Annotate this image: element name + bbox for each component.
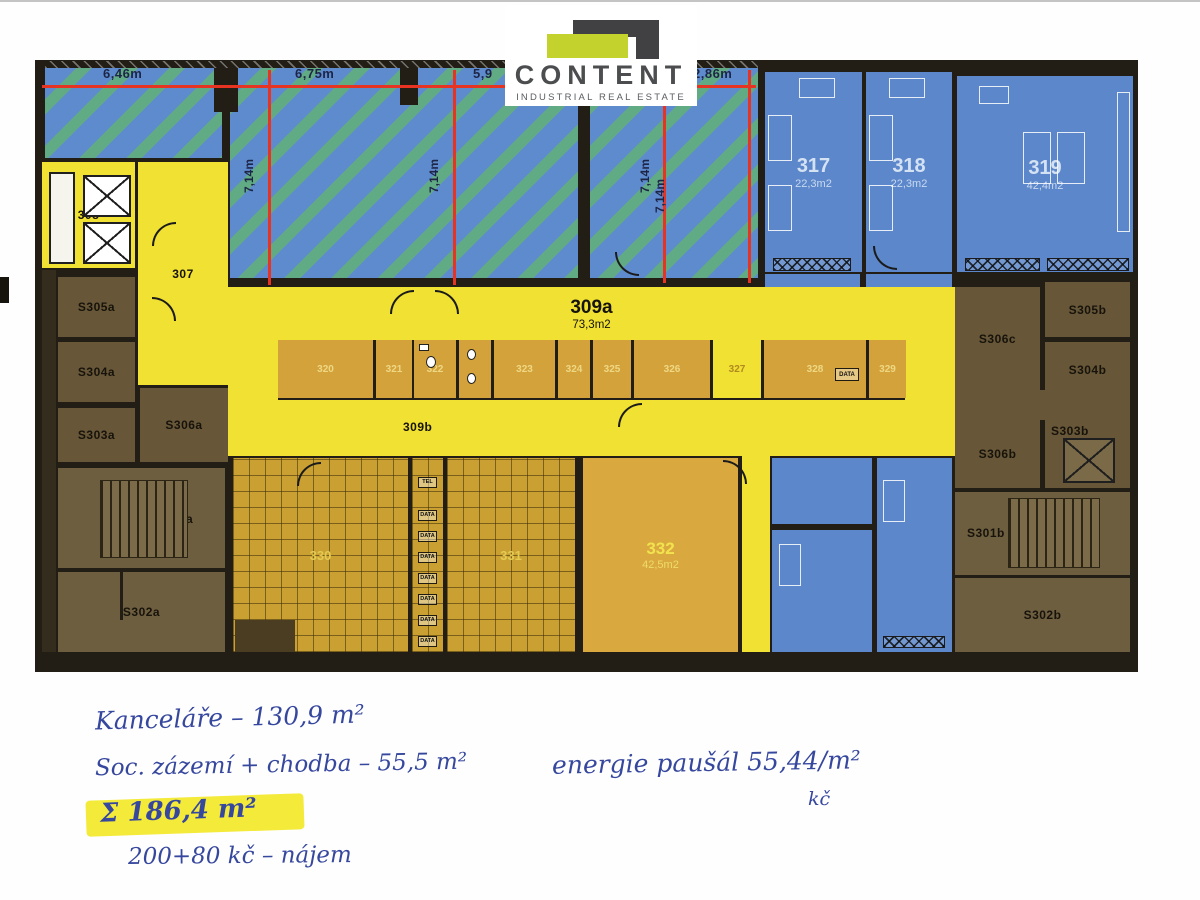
handwritten-note-currency: kč [808,788,830,810]
room-s303b-label: S303b [1051,424,1089,438]
room-318-label: 318 [892,155,925,178]
dimension-label-vertical: 7,14m [653,170,667,222]
room-326-label: 326 [664,364,681,375]
room-332-label: 332 [646,539,674,559]
stairs-icon [1008,498,1100,568]
data-rack-label: DATA [420,576,434,582]
data-rack-icon: DATA [418,573,437,584]
room-s306c-label: S306c [979,332,1016,346]
data-rack-label: DATA [420,639,434,645]
data-rack-label: DATA [420,534,434,540]
room-324-label: 324 [566,364,583,375]
room-s302a-label: S302a [123,605,160,619]
dimension-label-vertical: 7,14m [242,150,256,202]
data-rack-label: DATA [420,597,434,603]
dimension-label: 2,86m [693,66,732,81]
room-s306a-label: S306a [165,418,202,432]
dimension-line-vertical [453,70,456,285]
corridor-309a: 309a 73,3m2 [228,287,955,340]
vestibule-318 [866,274,952,287]
logo-mark-green [547,34,628,58]
room-wc-cell [459,340,491,398]
radiator-strip-icon [773,258,851,271]
room-318-area: 22,3m2 [891,178,928,190]
room-307-label: 307 [172,267,194,281]
data-rack-icon: DATA [418,552,437,563]
room-332: 332 42,5m2 [583,458,738,652]
desk-outline [883,480,905,522]
dimension-label: 5,9 [473,66,493,81]
logo-tagline: INDUSTRIAL REAL ESTATE [505,92,697,103]
desk-outline [889,78,925,98]
handwritten-note-total: Σ 186,4 m² [100,793,258,828]
dimension-line-vertical [268,70,271,285]
dark-floor-patch [235,620,295,652]
room-s303a: S303a [58,408,135,462]
data-rack-icon: DATA [835,368,859,381]
room-317-area: 22,3m2 [795,178,832,190]
room-s305b: S305b [1045,282,1130,337]
elevator-icon [1063,438,1115,483]
sink-icon [426,356,436,368]
room-s306b: S306b [955,420,1040,488]
radiator-strip-icon [883,636,945,648]
tel-rack-icon: TEL [418,477,437,488]
corridor-309a-label: 309a [570,297,612,319]
handwritten-note-rent: 200+80 kč – nájem [128,842,352,870]
room-331-label: 331 [500,548,522,563]
sink-icon [419,344,429,351]
scan-edge-artifact [0,0,1200,2]
room-s303a-label: S303a [78,428,115,442]
scanned-floor-plan-page: 317 22,3m2 318 22,3m2 319 42,4m2 308 [0,0,1200,900]
room-s306a: S306a [140,388,228,462]
room-317: 317 22,3m2 [765,72,862,272]
room-329: 329 [869,340,906,398]
elevator-icon [83,175,131,217]
room-330-label: 330 [310,548,332,563]
floor-plan: 317 22,3m2 318 22,3m2 319 42,4m2 308 [35,60,1138,672]
elevator-icon [83,222,131,264]
desk-outline [768,185,792,231]
room-s304b: S304b [1045,342,1130,397]
room-s302b-label: S302b [1024,608,1062,622]
logo-title: CONTENT [505,60,697,91]
desk-outline [979,86,1009,104]
corridor-wedge [742,456,770,652]
room-321: 321 [376,340,412,398]
room-323-label: 323 [516,364,533,375]
desk-outline [768,115,792,161]
room-325-label: 325 [604,364,621,375]
service-shaft-strip [42,270,56,652]
data-rack-label: DATA [839,372,855,378]
desk-outline [869,185,893,231]
data-rack-icon: DATA [418,594,437,605]
room-320: 320 [278,340,373,398]
data-rack-icon: DATA [418,615,437,626]
room-332-area: 42,5m2 [642,559,679,571]
radiator-strip-icon [1047,258,1129,271]
toilet-icon [467,373,476,384]
vestibule-317 [765,274,860,287]
room-324: 324 [558,340,590,398]
data-rack-label: DATA [420,555,434,561]
data-rack-icon: DATA [418,510,437,521]
room-s306c: S306c [955,287,1040,390]
wall-divider [120,572,123,620]
corridor-link-right [905,340,955,400]
wall-pier [214,68,238,112]
data-rack-icon: DATA [418,636,437,647]
data-rack-label: DATA [420,513,434,519]
data-rack-icon: DATA [418,531,437,542]
desk-outline [869,115,893,161]
shaft-outline [49,172,75,264]
handwritten-note-energy: energie paušál 55,44/m² [552,745,861,779]
open-space-hatched-a [45,68,222,158]
scan-ink-mark [0,277,9,303]
corridor-309b-label: 309b [403,420,432,434]
room-s304b-label: S304b [1069,363,1107,377]
corridor-309b: 309b [228,400,955,456]
logo-mark-dark [636,37,659,59]
room-s304a-label: S304a [78,365,115,379]
handwritten-note-offices: Kanceláře – 130,9 m² [95,699,365,735]
room-s305b-label: S305b [1069,303,1107,317]
room-s305a: S305a [58,277,135,337]
desk-outline [799,78,835,98]
dimension-label: 6,46m [103,66,142,81]
room-327: 327 [713,340,761,398]
room-s305a-label: S305a [78,300,115,314]
room-s302a: S302a [58,572,225,652]
data-rack-label: DATA [420,618,434,624]
room-318: 318 22,3m2 [866,72,952,272]
room-s304a: S304a [58,342,135,402]
corridor-link-left [228,340,278,400]
dimension-line-vertical [748,70,751,283]
room-blue-sw [772,458,872,524]
tel-rack-label: TEL [422,480,432,486]
room-331: 331 [447,458,575,652]
room-307: 307 [138,162,228,385]
room-321-label: 321 [386,364,403,375]
radiator-strip-icon [965,258,1040,271]
room-329-label: 329 [879,364,896,375]
dimension-label-vertical: 7,14m [638,150,652,202]
room-s306b-label: S306b [979,447,1017,461]
desk-outline [1057,132,1085,184]
room-320-label: 320 [317,364,334,375]
room-325: 325 [593,340,631,398]
room-326: 326 [634,340,710,398]
stairs-icon [100,480,188,558]
toilet-icon [467,349,476,360]
handwritten-note-facilities: Soc. zázemí + chodba – 55,5 m² [95,749,468,781]
room-317-label: 317 [797,155,830,178]
room-s302b: S302b [955,578,1130,652]
company-logo: CONTENT INDUSTRIAL REAL ESTATE [505,6,697,106]
dimension-label: 6,75m [295,66,334,81]
desk-outline [1023,132,1051,184]
corridor-309a-area: 73,3m2 [572,319,610,331]
room-328-label: 328 [807,364,824,375]
room-s301b-label: S301b [967,526,1005,540]
desk-outline [779,544,801,586]
cabinet-outline [1117,92,1130,232]
room-327-label: 327 [729,364,746,375]
dimension-label-vertical: 7,14m [427,150,441,202]
room-323: 323 [494,340,555,398]
